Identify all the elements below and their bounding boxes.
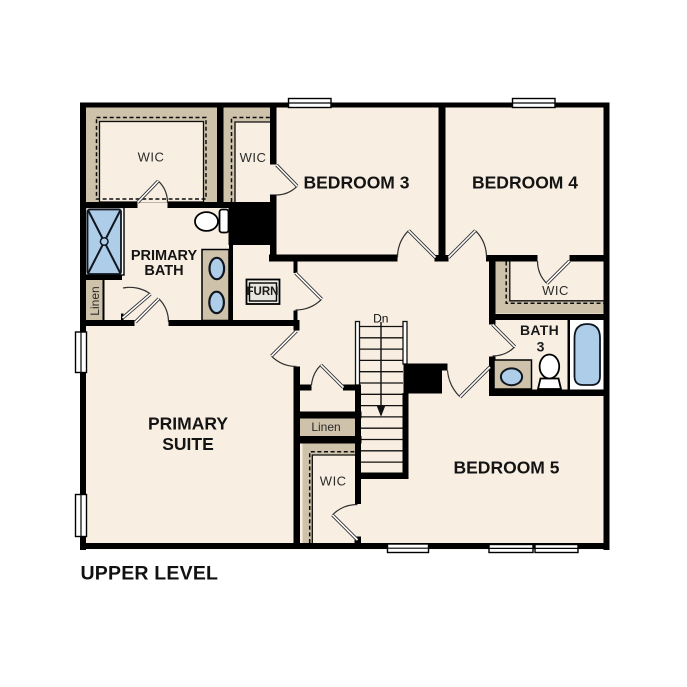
svg-text:PRIMARY: PRIMARY xyxy=(131,248,198,264)
svg-text:Linen: Linen xyxy=(88,286,102,315)
svg-text:WIC: WIC xyxy=(138,150,165,165)
svg-text:BATH: BATH xyxy=(144,263,183,279)
svg-text:Dn: Dn xyxy=(373,311,388,325)
svg-text:BATH: BATH xyxy=(520,322,559,338)
svg-text:BEDROOM 5: BEDROOM 5 xyxy=(454,458,560,478)
svg-text:FURN: FURN xyxy=(247,286,279,298)
svg-text:WIC: WIC xyxy=(542,283,569,298)
svg-text:Linen: Linen xyxy=(311,420,340,434)
svg-text:UPPER LEVEL: UPPER LEVEL xyxy=(81,563,219,585)
svg-text:BEDROOM 4: BEDROOM 4 xyxy=(472,173,578,193)
svg-text:WIC: WIC xyxy=(240,150,267,165)
svg-text:WIC: WIC xyxy=(320,474,347,489)
svg-text:PRIMARY: PRIMARY xyxy=(148,414,228,434)
svg-text:BEDROOM 3: BEDROOM 3 xyxy=(304,173,410,193)
svg-text:3: 3 xyxy=(537,339,545,355)
svg-text:SUITE: SUITE xyxy=(162,434,214,454)
